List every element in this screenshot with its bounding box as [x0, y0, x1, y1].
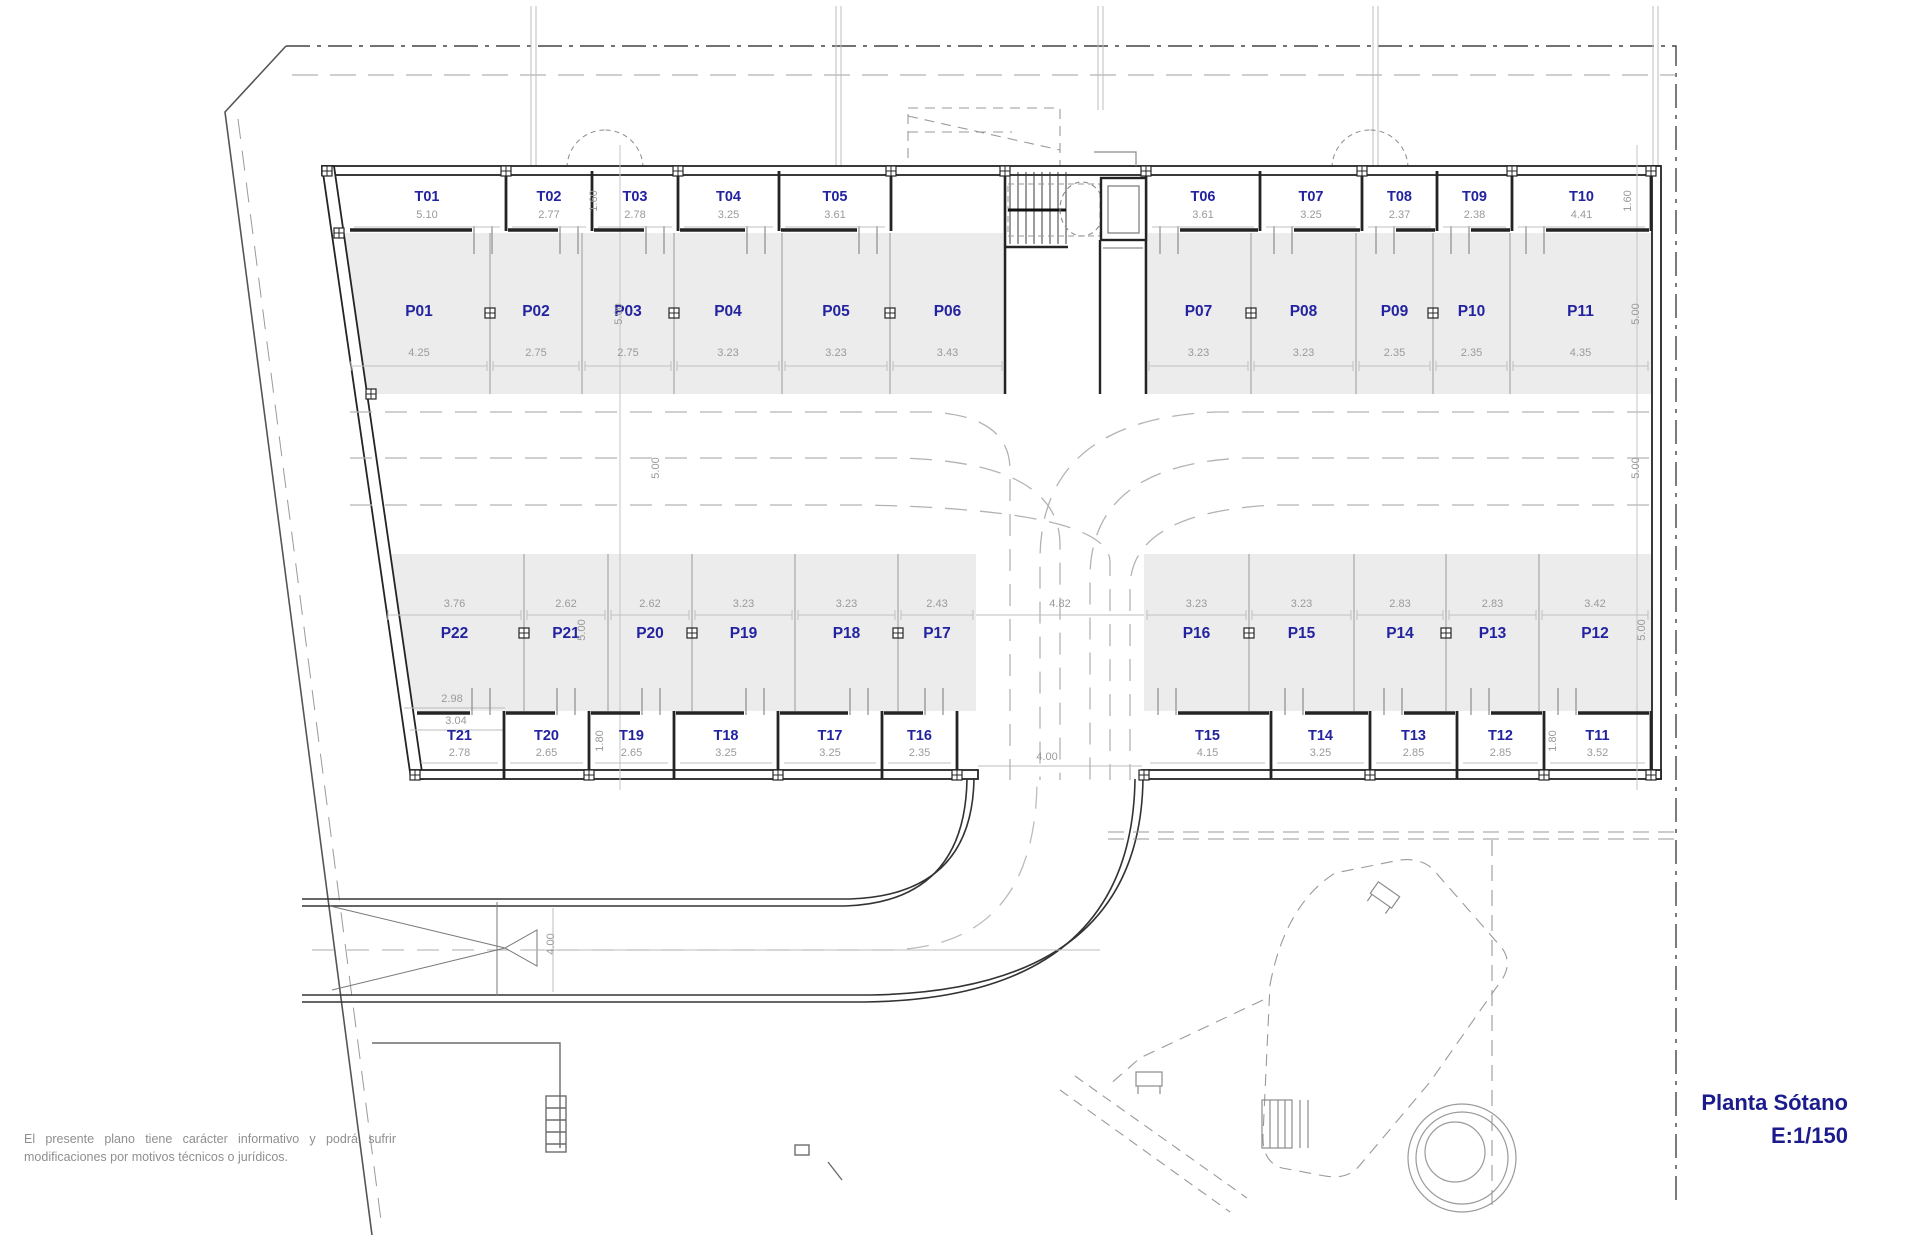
trastero-dim: 3.25	[1300, 209, 1321, 221]
trastero-dim: 5.10	[416, 209, 437, 221]
parking-dim: 3.42	[1584, 598, 1605, 610]
title-block: Planta Sótano E:1/150	[1701, 1086, 1848, 1152]
parking-stall-label: P20	[636, 625, 664, 643]
parking-dim: 2.83	[1482, 598, 1503, 610]
trastero-label: T18	[714, 728, 739, 744]
parking-stall-label: P04	[714, 303, 742, 321]
trastero-dim: 2.78	[449, 747, 470, 759]
trastero-label: T21	[447, 728, 472, 744]
trastero-label: T15	[1195, 728, 1220, 744]
dim-annotation-p22-lower: 3.04	[445, 715, 466, 727]
trastero-label: T06	[1191, 189, 1216, 205]
trastero-dim: 3.25	[715, 747, 736, 759]
dim-annotation-t-height-bottom-right: 1.80	[1547, 730, 1559, 751]
parking-dim: 3.23	[717, 347, 738, 359]
dim-annotation-exit-width: 4.00	[1036, 751, 1057, 763]
parking-stall-label: P07	[1185, 303, 1213, 321]
trastero-label: T10	[1569, 189, 1594, 205]
parking-dim: 4.35	[1570, 347, 1591, 359]
trastero-label: T03	[623, 189, 648, 205]
trastero-dim: 3.25	[819, 747, 840, 759]
trastero-dim: 2.78	[624, 209, 645, 221]
trastero-dim: 2.38	[1464, 209, 1485, 221]
parking-dim: 3.43	[937, 347, 958, 359]
disclaimer-note: El presente plano tiene carácter informa…	[24, 1130, 396, 1166]
parking-dim: 2.35	[1461, 347, 1482, 359]
trastero-label: T14	[1308, 728, 1333, 744]
parking-stall-label: P05	[822, 303, 850, 321]
parking-dim: 2.75	[525, 347, 546, 359]
trastero-label: T07	[1299, 189, 1324, 205]
trastero-label: T02	[537, 189, 562, 205]
dim-annotation-t-height-top-left: 1.60	[588, 190, 600, 211]
parking-dim: 2.62	[639, 598, 660, 610]
parking-dim: 3.76	[444, 598, 465, 610]
plan-title: Planta Sótano	[1701, 1086, 1848, 1119]
parking-dim: 3.23	[1291, 598, 1312, 610]
parking-stall-label: P12	[1581, 625, 1609, 643]
trastero-dim: 2.77	[538, 209, 559, 221]
parking-dim: 2.35	[1384, 347, 1405, 359]
parking-dim: 3.23	[733, 598, 754, 610]
parking-dim: 3.23	[1188, 347, 1209, 359]
trastero-dim: 3.52	[1587, 747, 1608, 759]
trastero-dim: 3.61	[824, 209, 845, 221]
dim-annotation-p-depth-bottom-left: 5.00	[576, 619, 588, 640]
parking-stall-label: P01	[405, 303, 433, 321]
trastero-label: T05	[823, 189, 848, 205]
dim-annotation-aisle-right: 5.00	[1630, 457, 1642, 478]
parking-dim: 4.25	[408, 347, 429, 359]
parking-dim: 3.23	[825, 347, 846, 359]
parking-dim: 3.23	[836, 598, 857, 610]
trastero-label: T12	[1488, 728, 1513, 744]
parking-stall-label: P13	[1479, 625, 1507, 643]
trastero-label: T17	[818, 728, 843, 744]
trastero-label: T08	[1387, 189, 1412, 205]
trastero-dim: 2.85	[1403, 747, 1424, 759]
trastero-dim: 2.85	[1490, 747, 1511, 759]
parking-stall-label: P19	[730, 625, 758, 643]
trastero-label: T11	[1585, 728, 1609, 744]
trastero-dim: 3.61	[1192, 209, 1213, 221]
parking-stall-label: P08	[1290, 303, 1318, 321]
parking-stall-label: P02	[522, 303, 550, 321]
trastero-dim: 2.65	[621, 747, 642, 759]
trastero-dim: 4.41	[1571, 209, 1592, 221]
trastero-dim: 2.37	[1389, 209, 1410, 221]
parking-stall-label: P17	[923, 625, 951, 643]
dim-annotation-aisle-left: 5.00	[650, 457, 662, 478]
trastero-dim: 2.65	[536, 747, 557, 759]
parking-dim: 2.62	[555, 598, 576, 610]
trastero-label: T16	[907, 728, 932, 744]
parking-stall-label: P06	[934, 303, 962, 321]
plan-scale: E:1/150	[1701, 1119, 1848, 1152]
dim-annotation-p22-upper: 2.98	[441, 693, 462, 705]
trastero-dim: 4.15	[1197, 747, 1218, 759]
parking-stall-label: P10	[1458, 303, 1486, 321]
parking-dim: 2.75	[617, 347, 638, 359]
parking-dim: 3.23	[1293, 347, 1314, 359]
trastero-label: T20	[534, 728, 559, 744]
parking-stall-label: P18	[833, 625, 861, 643]
trastero-label: T09	[1462, 189, 1487, 205]
dim-annotation-p-depth-top-right: 5.00	[1630, 303, 1642, 324]
trastero-dim: 2.35	[909, 747, 930, 759]
trastero-label: T19	[619, 728, 644, 744]
dim-annotation-p-depth-top-left: 5.00	[613, 303, 625, 324]
dim-annotation-ramp-width: 4.00	[545, 933, 557, 954]
parking-dim: 2.43	[926, 598, 947, 610]
parking-stall-label: P09	[1381, 303, 1409, 321]
basement-floor-plan: T015.10T022.77T032.78T043.25T053.61T063.…	[0, 0, 1920, 1237]
parking-stall-label: P14	[1386, 625, 1414, 643]
parking-stall-label: P22	[441, 625, 469, 643]
trastero-label: T13	[1401, 728, 1426, 744]
parking-dim: 3.23	[1186, 598, 1207, 610]
parking-stall-label: P11	[1567, 303, 1594, 321]
trastero-label: T04	[716, 189, 741, 205]
dim-annotation-p-depth-bottom-right: 5.00	[1636, 619, 1648, 640]
trastero-label: T01	[415, 189, 440, 205]
plan-drawing	[0, 0, 1920, 1237]
trastero-dim: 3.25	[1310, 747, 1331, 759]
dim-annotation-t-height-bottom-left: 1.80	[594, 730, 606, 751]
dim-annotation-t-height-top-right: 1.60	[1622, 190, 1634, 211]
parking-stall-label: P16	[1183, 625, 1211, 643]
parking-dim: 2.83	[1389, 598, 1410, 610]
dim-annotation-lane-width: 4.82	[1049, 598, 1070, 610]
trastero-dim: 3.25	[718, 209, 739, 221]
parking-stall-label: P15	[1288, 625, 1316, 643]
